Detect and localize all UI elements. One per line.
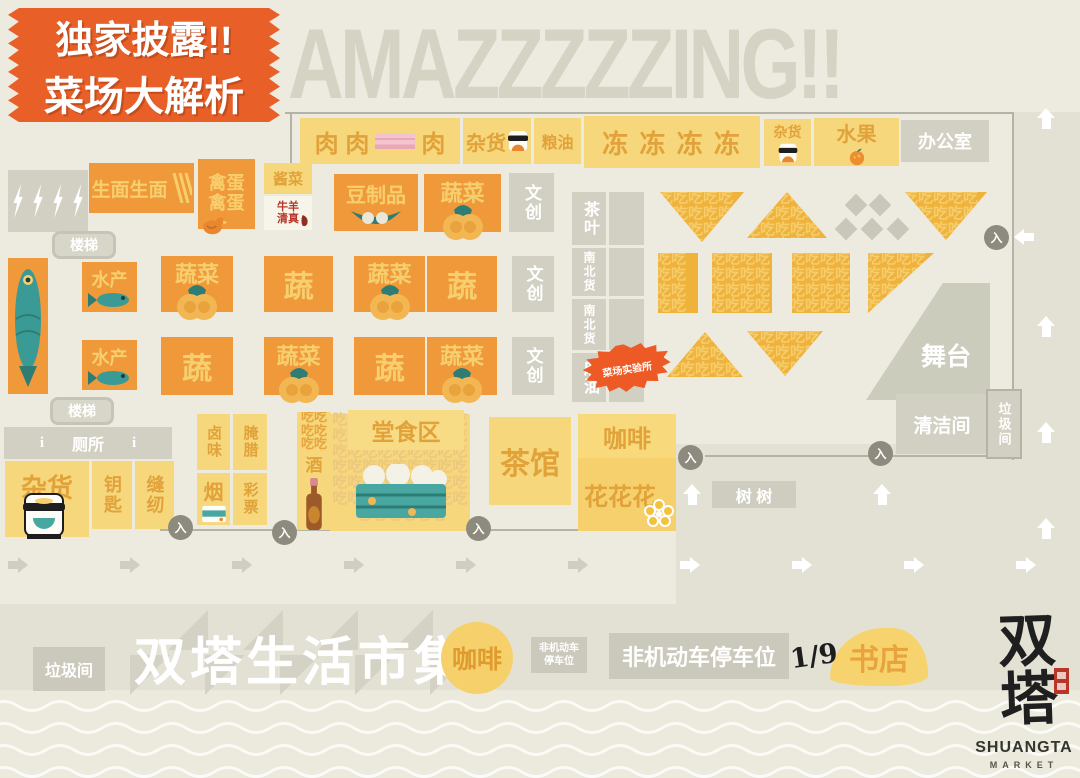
right-arrow-icon xyxy=(904,556,924,574)
aquatic-label: 水产 xyxy=(92,266,128,292)
stairs-text: 楼梯 xyxy=(68,401,96,421)
fraction-note: 1/9 xyxy=(792,632,836,681)
entrance-marker: 入 xyxy=(868,441,893,466)
stall-cultural-3: 文创 xyxy=(512,337,554,395)
cultural-label: 文创 xyxy=(525,347,542,385)
stall-braised: 卤味 xyxy=(197,414,230,470)
cultural-label: 文创 xyxy=(525,265,542,303)
fraction-text: 1/9 xyxy=(788,637,839,674)
north-south-label: 南北货 xyxy=(583,304,595,346)
stall-cured: 腌腊 xyxy=(233,414,267,470)
teahouse-label: 茶馆 xyxy=(500,439,560,483)
flower-icon xyxy=(644,499,674,529)
keys-label: 钥匙 xyxy=(103,475,121,515)
shuangta-logo: 双塔 SHUANGTA MARKET xyxy=(968,606,1080,774)
room-stage: 舞台 xyxy=(866,283,990,400)
info-icon: i xyxy=(40,435,44,452)
tofu-label: 豆制品 xyxy=(346,179,406,208)
halal-label-a: 牛羊 xyxy=(277,201,299,213)
dining-label: 堂食区 xyxy=(372,413,441,447)
stall-frozen: 冻 冻 冻 冻 xyxy=(584,116,760,168)
garbage2-label: 垃圾间 xyxy=(45,657,93,681)
logo-calligraphy: 双塔 xyxy=(992,609,1054,727)
logo-en: SHUANGTA xyxy=(968,738,1080,758)
poultry-label2: 禽蛋 xyxy=(209,194,245,214)
info-icon: i xyxy=(132,435,136,452)
tobacco-label: 烟 xyxy=(204,476,224,505)
frozen-label: 冻 冻 冻 冻 xyxy=(602,124,742,161)
eat-pattern: 吃吃吃吃吃吃吃吃吃吃吃吃吃吃吃吃吃吃吃吃吃吃吃吃吃吃吃吃吃吃吃吃吃吃吃吃吃吃吃吃… xyxy=(747,192,827,238)
diamond-icon xyxy=(869,194,892,217)
stairs-label-1: 楼梯 xyxy=(52,231,116,259)
banner-text: AMAZZZZZING!! xyxy=(288,7,841,121)
noodles-icon xyxy=(170,173,192,203)
pumpkin-icon xyxy=(174,280,220,322)
meat-label: 肉 肉 xyxy=(315,124,370,159)
stall-halal: 牛羊 清真 xyxy=(264,196,312,230)
eat-triangle-up-2: 吃吃吃吃吃吃吃吃吃吃吃吃吃吃吃吃吃吃吃吃吃吃吃吃吃吃吃吃吃吃吃吃吃吃吃吃吃吃吃吃… xyxy=(667,332,743,377)
garbage-label: 垃圾间 xyxy=(998,402,1011,447)
left-arrow-icon xyxy=(1014,228,1034,250)
lottery-label: 彩票 xyxy=(243,482,258,516)
stall-keys: 钥匙 xyxy=(92,461,132,529)
office-label: 办公室 xyxy=(918,128,972,154)
right-arrow-icon xyxy=(680,556,700,574)
diamond-icon xyxy=(845,194,868,217)
stairs-label-2: 楼梯 xyxy=(50,397,114,425)
lab-label: 菜场实验所 xyxy=(601,357,653,380)
chicken-icon xyxy=(200,215,228,235)
entrance-char: 入 xyxy=(990,229,1002,246)
meat-leg-icon xyxy=(299,213,311,229)
stall-veg-a4: 蔬 xyxy=(427,256,497,312)
badge-line1: 独家披露!! xyxy=(55,9,232,64)
lightning-icon xyxy=(10,184,26,218)
diamond-icon xyxy=(887,218,910,241)
stall-lottery: 彩票 xyxy=(233,473,267,525)
eat-triangle-corner: 吃吃吃吃吃吃吃吃吃吃吃吃吃吃吃吃吃吃吃吃吃吃吃吃吃吃吃吃吃吃吃吃吃吃吃吃吃吃吃吃… xyxy=(868,253,934,313)
stall-raw-noodles: 生面生面 xyxy=(89,163,194,213)
stairs-text: 楼梯 xyxy=(70,235,98,255)
north-south-label: 南北货 xyxy=(583,251,595,293)
entrance-marker: 入 xyxy=(984,225,1009,250)
entrance-char: 入 xyxy=(684,449,696,466)
room-cleaning: 清洁间 xyxy=(896,394,988,454)
stall-veg-b3: 蔬 xyxy=(354,337,425,395)
market-title-text: 双塔生活市集 xyxy=(134,620,470,695)
pumpkin-icon xyxy=(276,363,322,405)
orange-fruit-icon xyxy=(846,147,868,166)
stall-veg-a1: 蔬菜 xyxy=(161,256,233,312)
stall-aquatic-1: 水产 xyxy=(82,262,137,312)
meat-slab-icon xyxy=(375,133,415,149)
eat-pattern: 吃吃吃吃吃吃吃吃吃吃吃吃吃吃吃吃吃吃吃吃吃吃吃吃吃吃吃吃吃吃吃吃吃吃吃吃吃吃吃吃… xyxy=(297,412,331,451)
veg-short-label: 蔬 xyxy=(284,262,314,306)
stall-veg-a3: 蔬菜 xyxy=(354,256,425,312)
stall-fruit: 水果 xyxy=(814,118,899,166)
stall-tea: 茶叶 xyxy=(572,192,606,245)
trees-text: 树 树 xyxy=(736,483,772,507)
stage-label: 舞台 xyxy=(921,337,971,373)
parking-big: 非机动车停车位 xyxy=(609,633,789,679)
right-arrow-icon xyxy=(344,556,364,574)
wall-bottom-right xyxy=(705,455,1014,457)
stall-wine: 吃吃吃吃吃吃吃吃吃吃吃吃吃吃吃吃吃吃吃吃吃吃吃吃吃吃吃吃吃吃吃吃吃吃吃吃吃吃吃吃… xyxy=(297,412,331,530)
eat-triangle-down-3: 吃吃吃吃吃吃吃吃吃吃吃吃吃吃吃吃吃吃吃吃吃吃吃吃吃吃吃吃吃吃吃吃吃吃吃吃吃吃吃吃… xyxy=(747,331,823,376)
coffee-label: 咖啡 xyxy=(603,419,651,454)
coffee-flowers-bottom: 花花花 xyxy=(578,458,676,531)
stall-aquatic-2: 水产 xyxy=(82,340,137,390)
stall-teahouse: 茶馆 xyxy=(489,417,571,505)
lightning-icon xyxy=(30,184,46,218)
entrance-char: 入 xyxy=(874,445,886,462)
entrance-char: 入 xyxy=(174,519,186,536)
right-arrow-icon xyxy=(456,556,476,574)
tree-courtyard-zone xyxy=(676,444,1080,606)
stall-tobacco: 烟 xyxy=(197,473,230,525)
eat-pattern: 吃吃吃吃吃吃吃吃吃吃吃吃吃吃吃吃吃吃吃吃吃吃吃吃吃吃吃吃吃吃吃吃吃吃吃吃吃吃吃吃… xyxy=(792,253,850,313)
stall-cultural-2: 文创 xyxy=(512,256,554,312)
eat-pattern: 吃吃吃吃吃吃吃吃吃吃吃吃吃吃吃吃吃吃吃吃吃吃吃吃吃吃吃吃吃吃吃吃吃吃吃吃吃吃吃吃… xyxy=(747,331,823,376)
grain-label: 粮油 xyxy=(541,129,573,153)
big-fish-icon xyxy=(12,263,44,389)
stall-pickles: 酱菜 xyxy=(264,163,312,194)
trees-label: 树 树 xyxy=(712,481,796,508)
stall-sewing: 缝纫 xyxy=(135,461,174,529)
exclusive-badge: 独家披露!! 菜场大解析 xyxy=(8,8,280,122)
right-arrow-icon xyxy=(232,556,252,574)
eat-pattern: 吃吃吃吃吃吃吃吃吃吃吃吃吃吃吃吃吃吃吃吃吃吃吃吃吃吃吃吃吃吃吃吃吃吃吃吃吃吃吃吃… xyxy=(660,192,744,242)
stall-vegetables-0: 蔬菜 xyxy=(424,174,501,232)
entrance-char: 入 xyxy=(472,520,484,537)
stall-veg-a2: 蔬 xyxy=(264,256,333,312)
right-arrow-icon xyxy=(792,556,812,574)
toilet-label: 厕所 xyxy=(72,431,104,455)
right-arrow-icon xyxy=(120,556,140,574)
empty-cell xyxy=(609,248,644,296)
eat-pattern: 吃吃吃吃吃吃吃吃吃吃吃吃吃吃吃吃吃吃吃吃吃吃吃吃吃吃吃吃吃吃吃吃吃吃吃吃吃吃吃吃… xyxy=(712,253,772,313)
cigarette-box-icon xyxy=(201,505,227,523)
logo-cn-text: 双塔 xyxy=(987,609,1059,727)
room-garbage-2: 垃圾间 xyxy=(33,647,105,691)
wine-label: 酒 xyxy=(306,451,323,476)
room-garbage-1: 垃圾间 xyxy=(988,391,1020,457)
stall-groceries-top: 杂货 xyxy=(463,118,531,164)
eat-square-2: 吃吃吃吃吃吃吃吃吃吃吃吃吃吃吃吃吃吃吃吃吃吃吃吃吃吃吃吃吃吃吃吃吃吃吃吃吃吃吃吃… xyxy=(712,253,772,313)
veg-short-label: 蔬 xyxy=(447,262,477,306)
stall-big-fish xyxy=(8,258,48,394)
up-arrow-icon xyxy=(1036,108,1056,130)
cultural-label: 文创 xyxy=(523,184,540,222)
groceries-label: 杂货 xyxy=(466,127,506,156)
eat-triangle-up-1: 吃吃吃吃吃吃吃吃吃吃吃吃吃吃吃吃吃吃吃吃吃吃吃吃吃吃吃吃吃吃吃吃吃吃吃吃吃吃吃吃… xyxy=(747,192,827,238)
amazing-banner: AMAZZZZZING!! xyxy=(288,14,1080,114)
dining-area: 吃吃吃吃吃吃吃吃吃吃吃吃吃吃吃吃吃吃吃吃吃吃吃吃吃吃吃吃吃吃吃吃吃吃吃吃吃吃吃吃… xyxy=(330,414,470,531)
fish-icon xyxy=(88,290,132,310)
peapod-icon xyxy=(349,205,403,231)
empty-cell xyxy=(609,299,644,350)
parking-small-line1: 非机动车 xyxy=(539,642,579,655)
stall-meat: 肉 肉 肉 xyxy=(300,118,460,164)
stall-groceries-2: 杂货 xyxy=(764,119,811,166)
entrance-marker: 入 xyxy=(272,520,297,545)
cleaning-label: 清洁间 xyxy=(913,411,970,438)
eat-square-1: 吃吃吃吃吃吃吃吃吃吃吃吃吃吃吃吃吃吃吃吃吃吃吃吃吃吃吃吃吃吃吃吃吃吃吃吃吃吃吃吃… xyxy=(658,253,698,313)
lightning-icon xyxy=(50,184,66,218)
coffee-kiosk-label: 咖啡 xyxy=(452,640,502,676)
pumpkin-icon xyxy=(440,200,486,242)
entrance-marker: 入 xyxy=(168,515,193,540)
right-arrow-icon xyxy=(8,556,28,574)
stall-veg-b4: 蔬菜 xyxy=(427,337,497,395)
eat-triangle-down-2: 吃吃吃吃吃吃吃吃吃吃吃吃吃吃吃吃吃吃吃吃吃吃吃吃吃吃吃吃吃吃吃吃吃吃吃吃吃吃吃吃… xyxy=(905,192,987,240)
badge-line2: 菜场大解析 xyxy=(44,64,244,122)
parking-big-label: 非机动车停车位 xyxy=(622,640,776,672)
stall-poultry-eggs: 禽蛋 禽蛋 xyxy=(198,159,255,229)
bottle-icon xyxy=(305,478,323,530)
room-office: 办公室 xyxy=(901,120,989,162)
sunglasses-face-icon xyxy=(778,142,798,164)
sewing-label: 缝纫 xyxy=(146,475,164,515)
lightning-block xyxy=(8,170,88,232)
eat-triangle-down-1: 吃吃吃吃吃吃吃吃吃吃吃吃吃吃吃吃吃吃吃吃吃吃吃吃吃吃吃吃吃吃吃吃吃吃吃吃吃吃吃吃… xyxy=(660,192,744,242)
eat-square-3: 吃吃吃吃吃吃吃吃吃吃吃吃吃吃吃吃吃吃吃吃吃吃吃吃吃吃吃吃吃吃吃吃吃吃吃吃吃吃吃吃… xyxy=(792,253,850,313)
room-toilet: i 厕所 i xyxy=(4,427,172,459)
entrance-marker: 入 xyxy=(678,445,703,470)
fish-icon xyxy=(88,368,132,388)
coffee-kiosk: 咖啡 xyxy=(441,622,513,694)
parking-small-line2: 停车位 xyxy=(544,655,574,668)
diamond-icon xyxy=(835,218,858,241)
entrance-char: 入 xyxy=(278,524,290,541)
coffee-flowers-top: 咖啡 xyxy=(578,414,676,458)
up-arrow-icon xyxy=(1036,316,1056,338)
market-title: 双塔生活市集 xyxy=(112,622,492,692)
up-arrow-icon xyxy=(1036,518,1056,540)
raw-noodles-label: 生面生面 xyxy=(91,175,167,202)
stall-north-south-2: 南北货 xyxy=(572,299,606,350)
right-corridor-zone xyxy=(1014,112,1080,462)
stall-coffee-flowers: 咖啡 花花花 xyxy=(578,414,676,531)
cooker-guy-icon xyxy=(21,492,67,540)
wave-lines xyxy=(0,690,1080,778)
braised-label: 卤味 xyxy=(206,425,221,459)
cured-label: 腌腊 xyxy=(243,425,258,459)
dining-header: 堂食区 xyxy=(348,410,464,450)
halal-label-b: 清真 xyxy=(277,213,299,225)
tea-label: 茶叶 xyxy=(581,201,597,237)
meat-label2: 肉 xyxy=(421,124,445,159)
parking-small: 非机动车 停车位 xyxy=(531,637,587,673)
stall-grain-oil: 粮油 xyxy=(534,118,581,164)
right-arrow-icon xyxy=(1016,556,1036,574)
entrance-marker: 入 xyxy=(466,516,491,541)
pumpkin-icon xyxy=(439,363,485,405)
stall-north-south-1: 南北货 xyxy=(572,248,606,296)
eat-pattern: 吃吃吃吃吃吃吃吃吃吃吃吃吃吃吃吃吃吃吃吃吃吃吃吃吃吃吃吃吃吃吃吃吃吃吃吃吃吃吃吃… xyxy=(667,332,743,377)
pumpkin-icon xyxy=(367,280,413,322)
up-arrow-icon xyxy=(872,484,892,506)
eat-pattern: 吃吃吃吃吃吃吃吃吃吃吃吃吃吃吃吃吃吃吃吃吃吃吃吃吃吃吃吃吃吃吃吃吃吃吃吃吃吃吃吃… xyxy=(868,253,934,313)
logo-en-text: SHUANGTA xyxy=(975,739,1072,757)
poultry-label: 禽蛋 xyxy=(209,174,245,194)
logo-sub-text: MARKET xyxy=(990,760,1059,770)
fruit-label: 水果 xyxy=(837,118,877,147)
veg-short-label: 蔬 xyxy=(182,344,212,388)
stall-veg-b1: 蔬 xyxy=(161,337,233,395)
right-arrow-icon xyxy=(568,556,588,574)
empty-cell xyxy=(609,192,644,245)
logo-sub: MARKET xyxy=(968,758,1080,772)
up-arrow-icon xyxy=(682,484,702,506)
seal-stamp-icon xyxy=(1054,668,1069,694)
steamer-buns-icon xyxy=(354,464,448,520)
stall-cultural-1: 文创 xyxy=(509,173,554,232)
aquatic-label: 水产 xyxy=(92,344,128,370)
groceries2-label: 杂货 xyxy=(774,122,802,142)
lightning-icon xyxy=(70,184,86,218)
bookstore-label: 书店 xyxy=(849,635,909,679)
stall-veg-b2: 蔬菜 xyxy=(264,337,333,395)
eat-pattern: 吃吃吃吃吃吃吃吃吃吃吃吃吃吃吃吃吃吃吃吃吃吃吃吃吃吃吃吃吃吃吃吃吃吃吃吃吃吃吃吃… xyxy=(905,192,987,240)
market-floorplan: AMAZZZZZING!! 独家披露!! 菜场大解析 肉 肉 肉 杂货 粮油 冻… xyxy=(0,0,1080,778)
diamond-icon xyxy=(861,218,884,241)
stall-tofu: 豆制品 xyxy=(334,174,418,231)
sunglasses-face-icon xyxy=(508,129,528,153)
pickles-label: 酱菜 xyxy=(273,168,303,189)
up-arrow-icon xyxy=(1036,422,1056,444)
eat-pattern: 吃吃吃吃吃吃吃吃吃吃吃吃吃吃吃吃吃吃吃吃吃吃吃吃吃吃吃吃吃吃吃吃吃吃吃吃吃吃吃吃… xyxy=(658,253,698,313)
veg-short-label: 蔬 xyxy=(375,344,405,388)
